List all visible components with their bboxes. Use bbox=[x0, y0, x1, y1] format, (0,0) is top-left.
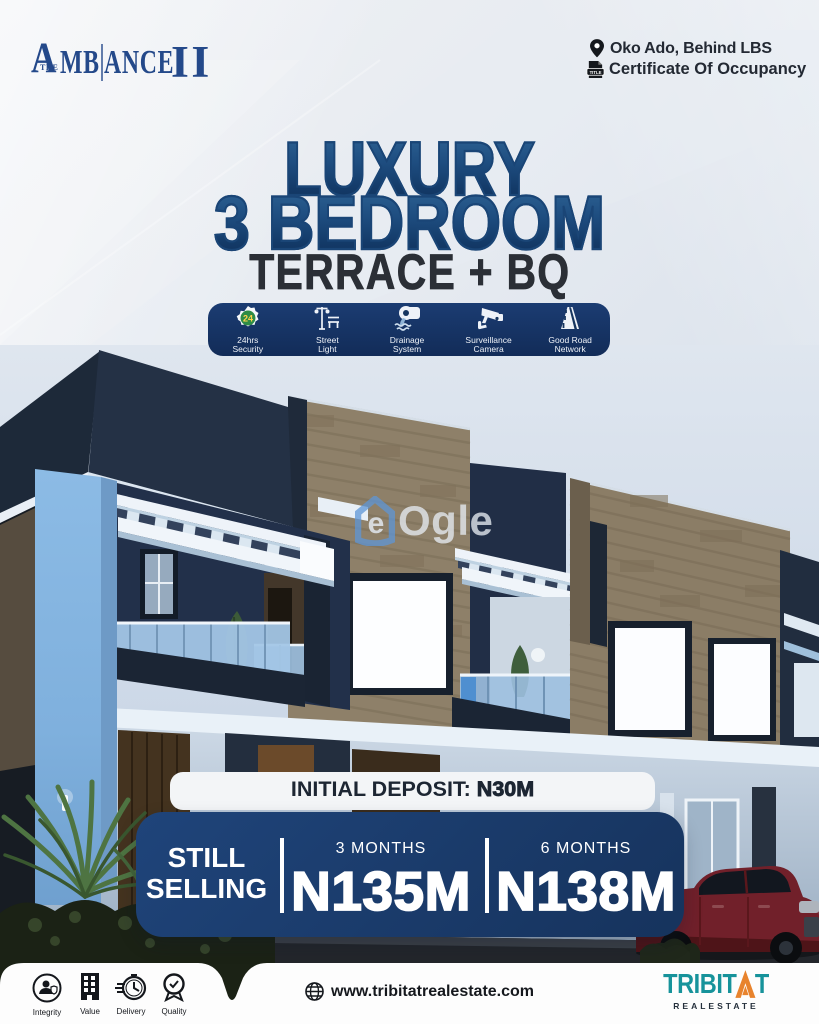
svg-text:24: 24 bbox=[243, 313, 253, 323]
svg-text:TITLE: TITLE bbox=[590, 70, 602, 75]
svg-text:e: e bbox=[368, 507, 385, 540]
